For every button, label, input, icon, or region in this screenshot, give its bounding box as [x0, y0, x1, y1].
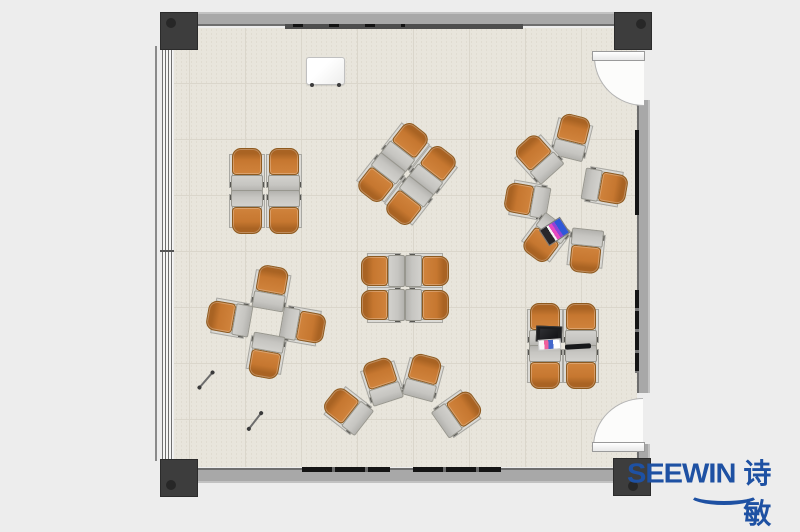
tablet-desk [571, 227, 605, 247]
wall-rail-right-lower [635, 290, 639, 373]
wall-rail-top [285, 24, 523, 29]
chair-desk-unit [266, 190, 302, 234]
logo-swoosh [689, 485, 759, 505]
chair-seat [232, 148, 262, 175]
chair-seat [530, 362, 560, 389]
chair-desk-unit [405, 287, 449, 323]
chair-desk-unit [244, 331, 287, 381]
chair-seat [247, 348, 281, 380]
chair-seat [569, 244, 602, 274]
tablet-desk [388, 289, 405, 321]
chair-seat [269, 207, 299, 234]
chair-seat [422, 290, 449, 320]
door-leaf-bottom [592, 442, 645, 452]
corner-post-top-right [614, 12, 652, 50]
chair-seat [295, 310, 327, 344]
colorful-papers [538, 338, 562, 351]
chair-desk-unit [566, 227, 606, 275]
post-dot [636, 19, 646, 29]
corner-post-bottom-left [160, 459, 198, 497]
wall-bottom [196, 468, 615, 483]
chair-desk-unit [527, 345, 563, 389]
corner-post-top-left [160, 12, 198, 50]
whiteboard-caster [310, 83, 314, 87]
tablet-desk [231, 190, 263, 207]
post-dot [166, 18, 176, 28]
chair-desk-unit [204, 296, 254, 339]
window-wall-outer-line [155, 46, 157, 461]
whiteboard-caster [337, 83, 341, 87]
window-mullion [160, 250, 174, 252]
tablet-desk [405, 289, 422, 321]
chair-seat [566, 362, 596, 389]
tablet-desk [405, 255, 422, 287]
chair-desk-unit [229, 190, 265, 234]
floorplan-stage: SEEWIN 诗敏 [0, 0, 800, 507]
chair-desk-unit [563, 345, 599, 389]
chair-desk-unit [580, 165, 630, 208]
tablet-desk [268, 190, 300, 207]
chair-desk-unit [563, 303, 599, 347]
tablet-desk [388, 255, 405, 287]
chair-seat [597, 171, 629, 205]
seewin-logo: SEEWIN 诗敏 [627, 452, 799, 502]
chair-seat [269, 148, 299, 175]
wall-rail-bottom-left [302, 467, 390, 472]
chair-seat [361, 256, 388, 286]
chair-seat [566, 303, 596, 330]
chair-seat [422, 256, 449, 286]
door-leaf-top [592, 51, 645, 61]
wall-rail-right-upper [635, 130, 639, 215]
wall-rail-bottom-right [413, 467, 501, 472]
mobile-whiteboard [306, 57, 345, 85]
chair-desk-unit [361, 287, 405, 323]
chair-seat [232, 207, 262, 234]
chair-desk-unit [361, 253, 405, 289]
chair-desk-unit [229, 148, 265, 192]
chair-seat [361, 290, 388, 320]
chair-desk-unit [405, 253, 449, 289]
post-dot [166, 480, 176, 490]
chair-desk-unit [266, 148, 302, 192]
window-wall-glazing [162, 46, 173, 461]
